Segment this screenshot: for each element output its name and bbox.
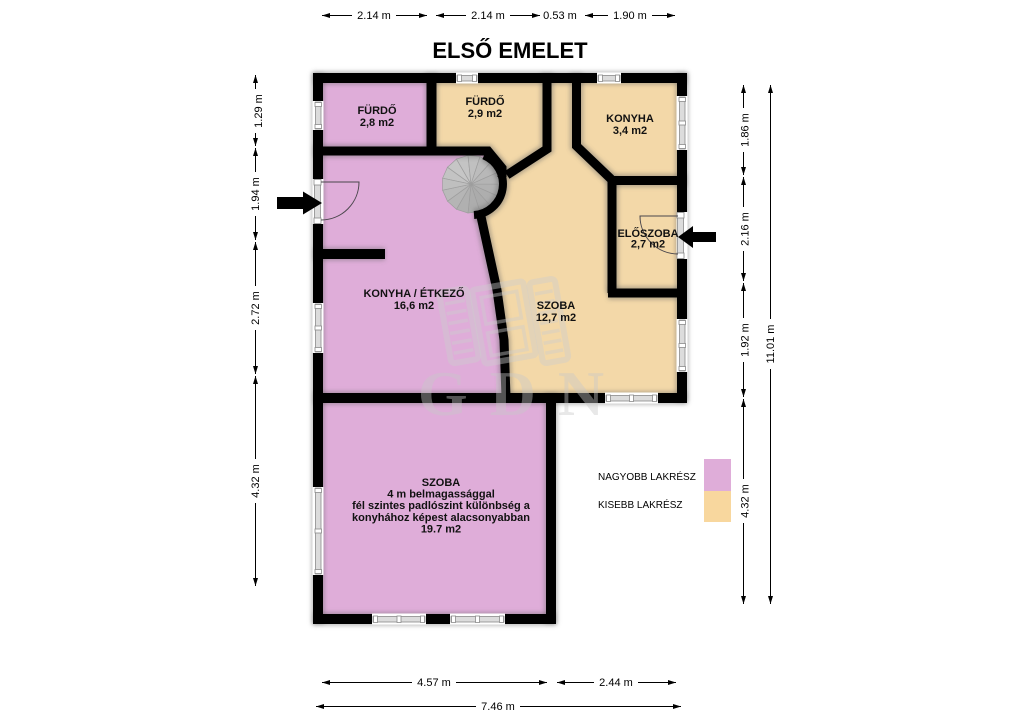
svg-text:16,6 m2: 16,6 m2 <box>394 300 434 312</box>
svg-text:1.92 m: 1.92 m <box>740 323 752 357</box>
svg-text:2.14 m: 2.14 m <box>471 10 505 22</box>
svg-text:3,4 m2: 3,4 m2 <box>613 125 647 137</box>
svg-text:KONYHA: KONYHA <box>606 113 654 125</box>
svg-text:FÜRDŐ: FÜRDŐ <box>357 104 397 117</box>
svg-text:4 m belmagassággal: 4 m belmagassággal <box>387 489 495 501</box>
svg-text:2.72 m: 2.72 m <box>250 291 262 325</box>
svg-text:2.14 m: 2.14 m <box>357 10 391 22</box>
svg-text:konyhához képest alacsonyabban: konyhához képest alacsonyabban <box>352 512 530 524</box>
svg-text:1.86 m: 1.86 m <box>740 113 752 147</box>
svg-text:KISEBB LAKRÉSZ: KISEBB LAKRÉSZ <box>598 498 682 511</box>
svg-text:4.57 m: 4.57 m <box>417 677 451 689</box>
svg-text:2.44 m: 2.44 m <box>599 677 633 689</box>
svg-text:11.01 m: 11.01 m <box>765 325 777 364</box>
svg-text:KONYHA / ÉTKEZŐ: KONYHA / ÉTKEZŐ <box>363 287 464 300</box>
svg-text:1.90 m: 1.90 m <box>613 10 647 22</box>
svg-text:1.29 m: 1.29 m <box>253 94 265 128</box>
svg-text:NAGYOBB LAKRÉSZ: NAGYOBB LAKRÉSZ <box>598 470 696 483</box>
svg-text:FÜRDŐ: FÜRDŐ <box>465 95 505 108</box>
svg-text:7.46 m: 7.46 m <box>481 701 515 713</box>
svg-text:4.32 m: 4.32 m <box>250 464 262 498</box>
svg-text:19.7 m2: 19.7 m2 <box>421 523 461 535</box>
svg-text:SZOBA: SZOBA <box>537 300 576 312</box>
svg-text:fél szintes padlószint különbs: fél szintes padlószint különbség a <box>352 500 531 512</box>
svg-text:1.94 m: 1.94 m <box>250 177 262 211</box>
svg-text:4.32 m: 4.32 m <box>740 484 752 518</box>
svg-text:2,7 m2: 2,7 m2 <box>631 239 665 251</box>
svg-text:0.53 m: 0.53 m <box>543 10 577 22</box>
svg-text:2,8 m2: 2,8 m2 <box>360 117 394 129</box>
svg-text:GDN: GDN <box>418 358 626 429</box>
svg-text:2.16 m: 2.16 m <box>740 212 752 246</box>
svg-text:SZOBA: SZOBA <box>422 477 461 489</box>
svg-text:12,7 m2: 12,7 m2 <box>536 312 576 324</box>
svg-text:ELSŐ EMELET: ELSŐ EMELET <box>432 38 588 63</box>
svg-text:2,9 m2: 2,9 m2 <box>468 108 502 120</box>
